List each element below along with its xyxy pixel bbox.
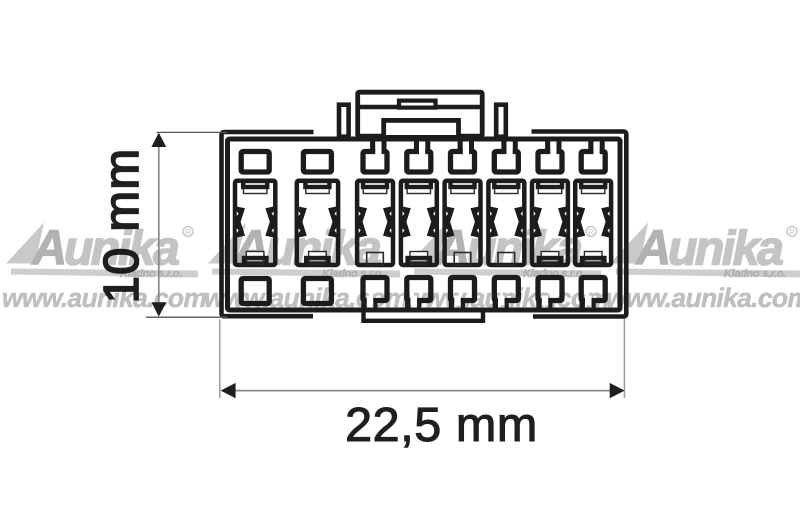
svg-text:www.aunika.com: www.aunika.com bbox=[606, 283, 800, 313]
svg-text:Kladno s.r.o.: Kladno s.r.o. bbox=[724, 268, 786, 280]
svg-text:R: R bbox=[789, 228, 795, 237]
svg-text:22,5 mm: 22,5 mm bbox=[345, 398, 538, 452]
svg-text:R: R bbox=[185, 228, 191, 237]
svg-text:10 mm: 10 mm bbox=[95, 148, 149, 304]
svg-text:R: R bbox=[588, 228, 594, 237]
svg-text:A: A bbox=[635, 221, 671, 275]
svg-text:A: A bbox=[31, 221, 67, 275]
